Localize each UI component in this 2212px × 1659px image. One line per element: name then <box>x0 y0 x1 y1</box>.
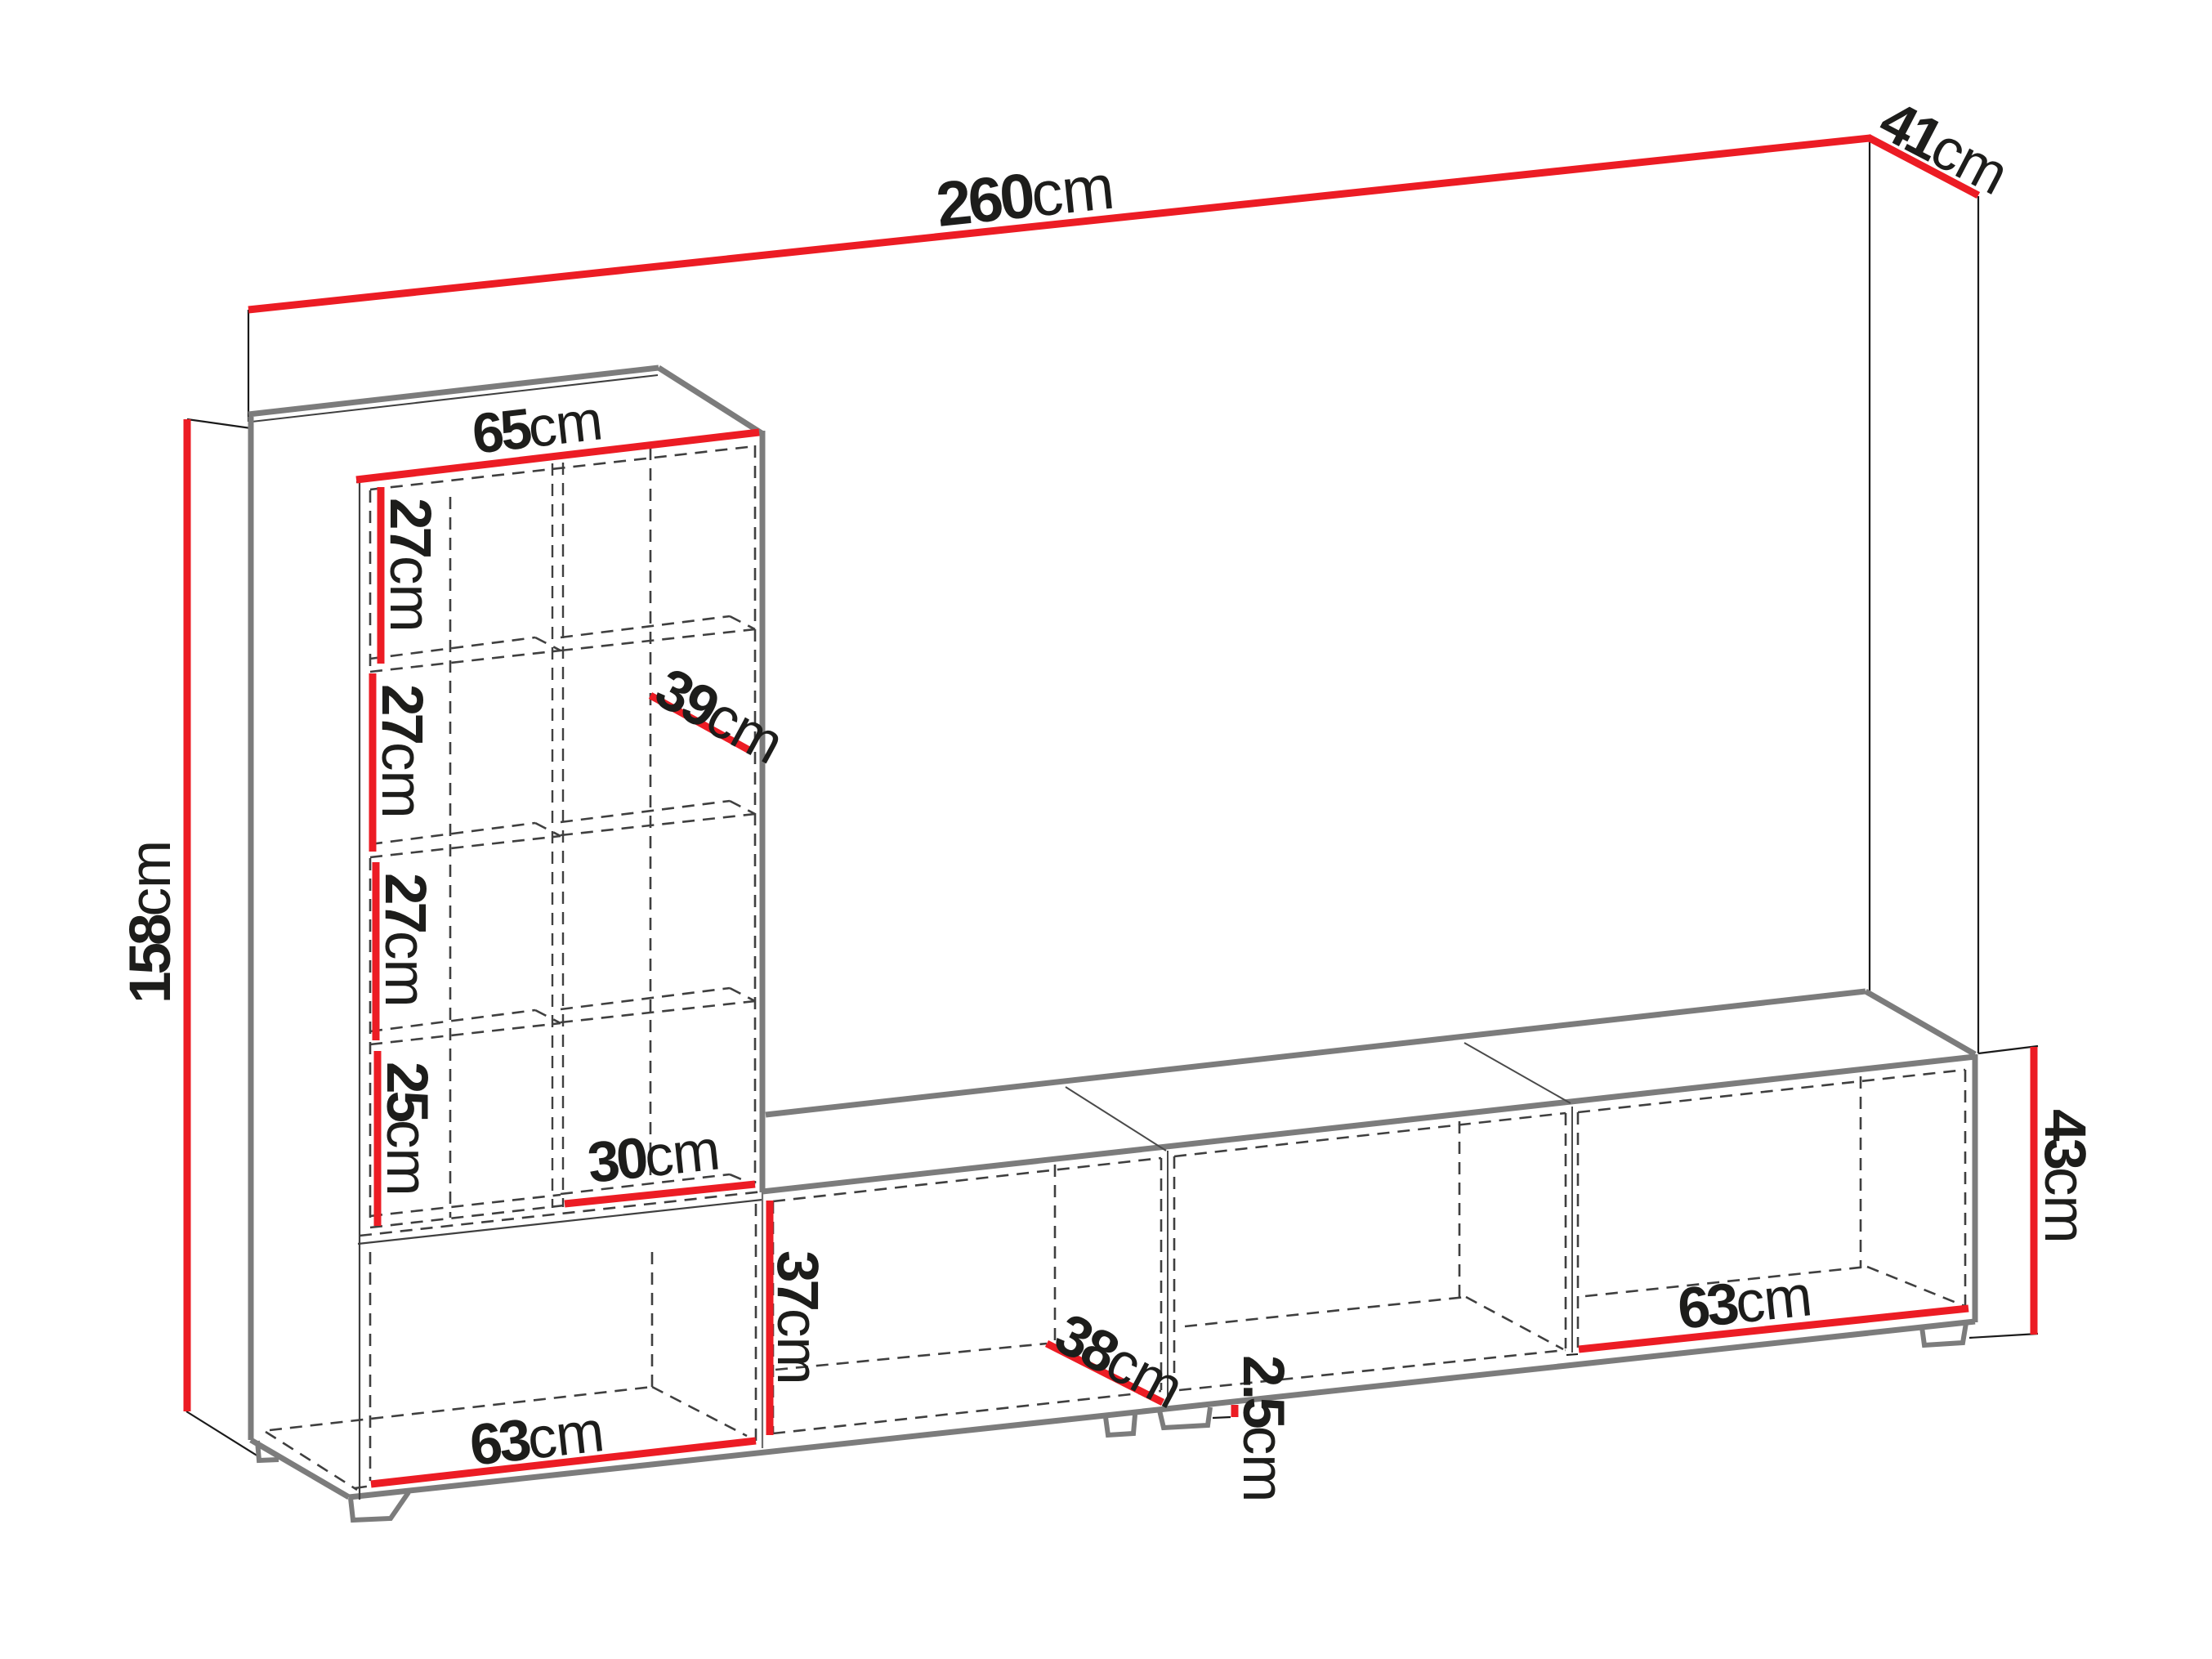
svg-text:27cm: 27cm <box>378 498 442 632</box>
svg-text:37cm: 37cm <box>765 1250 829 1384</box>
svg-text:43cm: 43cm <box>2032 1109 2097 1243</box>
svg-text:63cm: 63cm <box>467 1399 606 1478</box>
svg-text:27cm: 27cm <box>373 873 437 1007</box>
svg-text:38cm: 38cm <box>1044 1301 1193 1421</box>
svg-text:41cm: 41cm <box>1870 88 2018 208</box>
svg-text:260cm: 260cm <box>933 152 1117 240</box>
svg-text:27cm: 27cm <box>369 684 434 818</box>
svg-text:158cm: 158cm <box>118 841 183 1004</box>
svg-text:2.5cm: 2.5cm <box>1231 1355 1295 1501</box>
svg-text:39cm: 39cm <box>645 656 793 777</box>
svg-text:30cm: 30cm <box>584 1117 722 1194</box>
svg-text:25cm: 25cm <box>374 1062 439 1196</box>
